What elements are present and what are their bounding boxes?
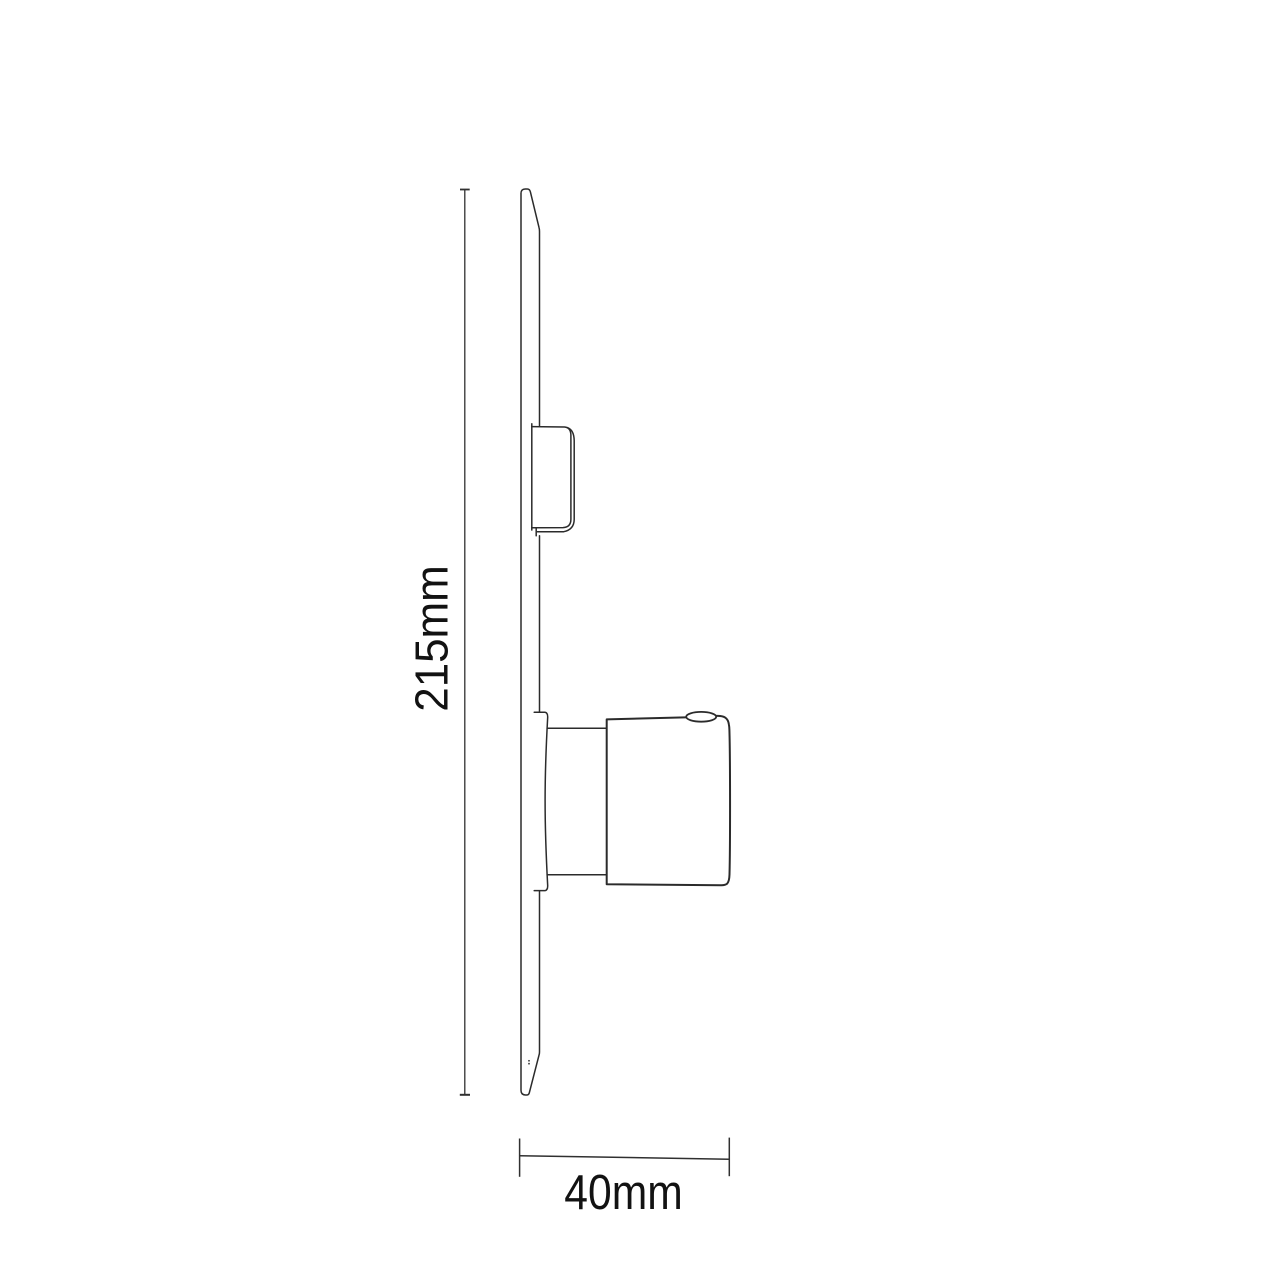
svg-text:40mm: 40mm: [564, 1164, 682, 1219]
svg-text:215mm: 215mm: [405, 565, 457, 711]
